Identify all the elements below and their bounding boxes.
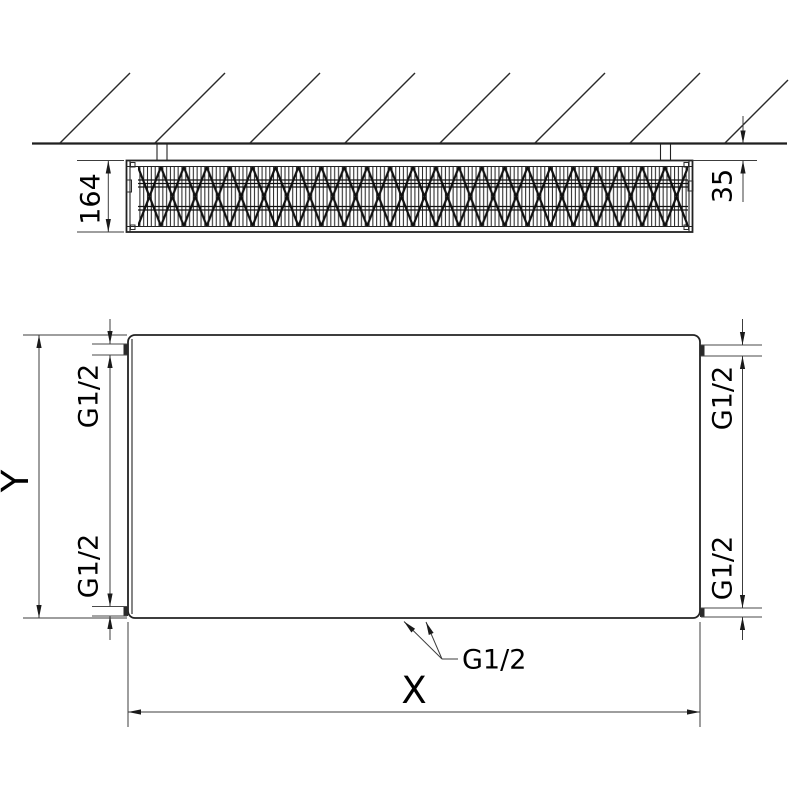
- radiator-side-view: [127, 144, 694, 232]
- wall-hatching: [60, 73, 788, 143]
- wall-section: [32, 73, 788, 144]
- front-panel: [128, 335, 700, 618]
- width-dimension-label: X: [401, 669, 426, 712]
- connection-boss-top-right: [700, 345, 705, 356]
- wall-clearance-dimension-label: 35: [707, 169, 738, 203]
- depth-dimension-label: 164: [75, 173, 106, 225]
- connection-dimension-right: G1/2 G1/2: [701, 319, 762, 640]
- connection-label-bottom-right: G1/2: [707, 536, 738, 600]
- connection-label-top-right: G1/2: [707, 366, 738, 430]
- bottom-connection-leader: G1/2: [404, 622, 526, 676]
- connection-boss-bottom-left: [124, 607, 129, 617]
- connection-label-bottom-left: G1/2: [73, 534, 104, 598]
- technical-drawing-page: 164 35 Y: [0, 0, 800, 800]
- connection-label-top-left: G1/2: [73, 364, 104, 428]
- height-dimension-label: Y: [0, 469, 37, 493]
- depth-dimension: 164: [75, 161, 124, 233]
- radiator-front-view: [124, 335, 705, 618]
- width-dimension: X: [128, 622, 700, 727]
- mounting-bracket-left: [157, 144, 167, 161]
- mounting-bracket-right: [661, 144, 671, 161]
- connection-dimension-left: G1/2 G1/2: [73, 319, 127, 640]
- height-dimension: Y: [0, 335, 127, 618]
- connection-label-bottom-center: G1/2: [462, 644, 526, 675]
- convector-fin-pattern: [138, 167, 688, 226]
- wall-clearance-dimension: 35: [693, 116, 758, 203]
- radiator-technical-drawing: 164 35 Y: [0, 0, 800, 800]
- connection-boss-top-left: [124, 344, 129, 355]
- connection-boss-bottom-right: [700, 608, 705, 617]
- end-plate-tab: [131, 225, 136, 230]
